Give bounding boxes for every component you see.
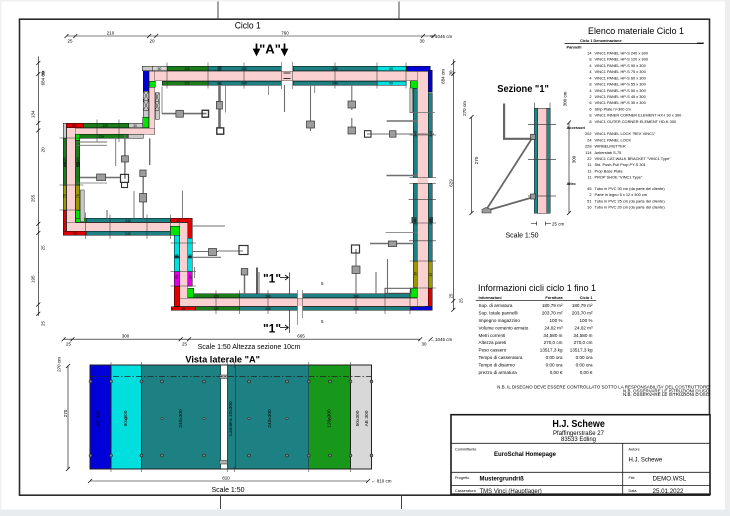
svg-text:Metri correnti: Metri correnti <box>479 333 506 338</box>
svg-text:24,02 m³: 24,02 m³ <box>544 325 563 330</box>
svg-text:30: 30 <box>421 342 427 347</box>
svg-text:270: 270 <box>63 409 68 417</box>
svg-text:8: 8 <box>589 113 591 118</box>
svg-text:File: File <box>629 476 635 480</box>
svg-text:120: 120 <box>76 157 80 163</box>
svg-text:Tempo di disarmo: Tempo di disarmo <box>479 362 516 367</box>
svg-text:VINC1 PANEL HP-S 90 x 300: VINC1 PANEL HP-S 90 x 300 <box>595 63 647 68</box>
svg-text:0:00 ora: 0:00 ora <box>576 362 593 367</box>
svg-text:0:00 ora: 0:00 ora <box>546 362 563 367</box>
svg-text:120: 120 <box>213 295 219 299</box>
svg-text:25: 25 <box>41 321 46 327</box>
svg-text:Tubo in PVC 20 cm (da parte de: Tubo in PVC 20 cm (da parte del cliente) <box>595 205 666 210</box>
svg-text:Prop Base Plate: Prop Base Plate <box>595 168 623 173</box>
svg-text:Sup. di armatura: Sup. di armatura <box>479 303 513 308</box>
svg-text:←1045 cm: ←1045 cm <box>431 337 453 342</box>
svg-text:55: 55 <box>177 219 181 223</box>
svg-text:"A": "A" <box>259 42 281 57</box>
svg-text:N.B. OSSERVARE LE ISTRUZIONI D: N.B. OSSERVARE LE ISTRUZIONI D'USO! <box>623 392 710 397</box>
svg-text:203,70 m²: 203,70 m² <box>542 311 563 316</box>
svg-text:Fornitura: Fornitura <box>545 295 563 300</box>
svg-text:Peso cassero: Peso cassero <box>479 348 507 353</box>
svg-text:Ciclo 1 Denominazione: Ciclo 1 Denominazione <box>580 39 622 43</box>
svg-text:0,00 €: 0,00 € <box>550 370 563 375</box>
svg-text:228: 228 <box>585 144 592 149</box>
svg-text:20: 20 <box>41 147 46 153</box>
svg-text:684 cm: 684 cm <box>441 69 446 84</box>
svg-text:300 cm: 300 cm <box>563 91 568 106</box>
svg-text:Sezione "1": Sezione "1" <box>497 84 549 95</box>
svg-text:120: 120 <box>184 82 190 86</box>
svg-text:H.J. Schewe: H.J. Schewe <box>552 419 605 430</box>
svg-text:90: 90 <box>175 254 179 258</box>
svg-text:VINC1 PANEL HP-S 240 x 300: VINC1 PANEL HP-S 240 x 300 <box>595 51 649 56</box>
svg-text:Vista laterale "A": Vista laterale "A" <box>185 355 260 366</box>
svg-text:24,02 m³: 24,02 m³ <box>574 325 593 330</box>
svg-text:VINC1 INNER CORNER ELEMENT HX-: VINC1 INNER CORNER ELEMENT HX-I 30 x 300 <box>595 113 683 118</box>
svg-text:Impegno magazzino: Impegno magazzino <box>479 318 521 323</box>
svg-text:240: 240 <box>125 232 131 236</box>
svg-text:45: 45 <box>587 186 591 191</box>
svg-text:210: 210 <box>107 31 115 36</box>
svg-text:TMS Vinci (Hauptlager): TMS Vinci (Hauptlager) <box>480 489 542 495</box>
svg-text:"1": "1" <box>263 322 281 336</box>
svg-text:25: 25 <box>41 245 46 251</box>
svg-text:Scale 1:50: Scale 1:50 <box>211 487 244 494</box>
svg-text:34,580 m: 34,580 m <box>543 333 562 338</box>
svg-text:120: 120 <box>63 157 67 163</box>
svg-text:Casseratura: Casseratura <box>455 489 477 493</box>
svg-text:Mustergrundriß: Mustergrundriß <box>480 476 525 482</box>
svg-text:240: 240 <box>353 307 359 311</box>
svg-text:240: 240 <box>429 219 433 225</box>
svg-text:Data: Data <box>629 489 638 493</box>
svg-text:25: 25 <box>449 293 454 299</box>
svg-text:Tubo in PVC 25 cm (da parte de: Tubo in PVC 25 cm (da parte del cliente) <box>595 198 666 203</box>
svg-text:2: 2 <box>589 94 591 99</box>
svg-text:810: 810 <box>222 476 230 481</box>
svg-text:Std. Push-Pull Prop PY-S 301: Std. Push-Pull Prop PY-S 301 <box>595 162 646 167</box>
svg-text:240: 240 <box>332 82 338 86</box>
svg-text:240: 240 <box>429 131 433 137</box>
svg-text:202: 202 <box>585 131 592 136</box>
svg-text:8: 8 <box>589 82 591 87</box>
svg-text:Ankerstab S-75: Ankerstab S-75 <box>595 150 622 155</box>
svg-text:Pannelli: Pannelli <box>567 45 582 50</box>
svg-text:195: 195 <box>31 275 36 283</box>
svg-text:VINC1 PANEL LOCK: VINC1 PANEL LOCK <box>595 137 632 142</box>
svg-text:22: 22 <box>587 156 591 161</box>
svg-text:50x300: 50x300 <box>355 410 361 426</box>
svg-text:Informazioni: Informazioni <box>479 295 502 300</box>
svg-text:WIRBELMUTTER: WIRBELMUTTER <box>595 144 626 149</box>
svg-text:Progetto: Progetto <box>455 476 469 480</box>
svg-text:Accessori: Accessori <box>567 125 586 130</box>
svg-text:240: 240 <box>265 295 271 299</box>
svg-text:Ciclo 1: Ciclo 1 <box>235 21 261 32</box>
svg-text:114: 114 <box>585 150 592 155</box>
svg-text:VINC1 PANEL HP-S 50 x 300: VINC1 PANEL HP-S 50 x 300 <box>595 88 647 93</box>
svg-text:30: 30 <box>175 275 179 279</box>
svg-text:34,580 m: 34,580 m <box>573 333 592 338</box>
svg-text:240: 240 <box>332 67 338 71</box>
svg-text:6: 6 <box>589 106 591 111</box>
svg-text:VINC1 CAT-WALK BRACKET "VINC1: VINC1 CAT-WALK BRACKET "VINC1 Type" <box>595 156 672 161</box>
svg-text:90: 90 <box>389 82 393 86</box>
svg-text:100 %: 100 % <box>549 318 562 323</box>
svg-text:Altezza pareti: Altezza pareti <box>479 340 507 345</box>
svg-text:prezzo di armatura: prezzo di armatura <box>479 370 518 375</box>
svg-text:100 %: 100 % <box>579 318 592 323</box>
svg-text:11: 11 <box>587 168 591 173</box>
svg-text:Scale 1:50 Altezza sezione 1: Scale 1:50 Altezza sezione 10cm <box>198 344 301 351</box>
svg-text:30: 30 <box>133 124 137 128</box>
svg-text:30: 30 <box>414 272 418 276</box>
svg-text:50: 50 <box>158 67 162 71</box>
svg-text:270,0 cm: 270,0 cm <box>544 340 563 345</box>
svg-text:120: 120 <box>213 307 219 311</box>
svg-text:Committente: Committente <box>455 448 477 452</box>
svg-text:30: 30 <box>419 39 425 44</box>
svg-text:90: 90 <box>389 67 393 71</box>
svg-text:0,00 €: 0,00 € <box>580 370 593 375</box>
svg-text:30: 30 <box>449 70 454 76</box>
svg-text:120: 120 <box>102 124 108 128</box>
svg-text:25.01.2022: 25.01.2022 <box>653 488 685 495</box>
svg-text:240: 240 <box>241 67 247 71</box>
svg-text:13517,3 kg: 13517,3 kg <box>540 348 563 353</box>
svg-text:VINC1 PANEL HP-S 45 x 300: VINC1 PANEL HP-S 45 x 300 <box>595 94 647 99</box>
svg-text:240: 240 <box>125 219 131 223</box>
svg-text:25: 25 <box>66 342 72 347</box>
svg-text:180,79 m²: 180,79 m² <box>572 303 593 308</box>
svg-text:AE 300: AE 300 <box>364 410 370 426</box>
svg-text:Strip Plate h=300 cm: Strip Plate h=300 cm <box>595 106 631 111</box>
svg-text:Tubo in PVC 30 cm (da parte de: Tubo in PVC 30 cm (da parte del cliente) <box>595 186 666 191</box>
svg-text:"1": "1" <box>263 272 281 286</box>
svg-text:760: 760 <box>281 31 289 36</box>
svg-text:120x300: 120x300 <box>327 409 333 428</box>
svg-text:25: 25 <box>182 342 188 347</box>
svg-text:134: 134 <box>31 110 36 118</box>
svg-text:VINC1 PANEL HP-S 120 x 300: VINC1 PANEL HP-S 120 x 300 <box>595 57 649 62</box>
svg-text:120: 120 <box>184 67 190 71</box>
svg-text:30: 30 <box>188 275 192 279</box>
svg-text:EuroSchal Homepage: EuroSchal Homepage <box>494 452 557 458</box>
svg-text:300: 300 <box>122 334 130 339</box>
svg-text:8: 8 <box>589 57 591 62</box>
svg-text:6: 6 <box>589 100 591 105</box>
svg-text:90x300: 90x300 <box>123 410 129 426</box>
svg-text:2: 2 <box>589 192 591 197</box>
svg-text:VINC1 PANEL HP-S 30 x 300: VINC1 PANEL HP-S 30 x 300 <box>595 100 647 105</box>
svg-text:75: 75 <box>63 194 67 198</box>
svg-text:H.J. Schewe: H.J. Schewe <box>629 458 663 464</box>
svg-text:VINC1 PANEL LOCK "REX VINC1": VINC1 PANEL LOCK "REX VINC1" <box>595 131 657 136</box>
svg-text:270: 270 <box>474 156 479 164</box>
svg-text:240: 240 <box>414 131 418 137</box>
svg-text:240x300: 240x300 <box>267 409 273 428</box>
svg-text:240: 240 <box>241 82 247 86</box>
svg-text:75: 75 <box>76 194 80 198</box>
svg-text:55: 55 <box>73 232 77 236</box>
svg-text:VINC1 OUTER CORNER ELEMENT HD-: VINC1 OUTER CORNER ELEMENT HD-K 300 <box>595 119 677 124</box>
svg-text:665: 665 <box>297 334 305 339</box>
svg-text:55: 55 <box>72 124 76 128</box>
svg-text:240: 240 <box>414 219 418 225</box>
svg-text:11: 11 <box>587 175 591 180</box>
svg-text:PROP SHOE "VINC1 Type": PROP SHOE "VINC1 Type" <box>595 175 643 180</box>
svg-text:Scale 1:50: Scale 1:50 <box>505 233 538 240</box>
svg-text:Parte in legno 5 x 12 x 300 cm: Parte in legno 5 x 12 x 300 cm <box>595 192 648 197</box>
svg-text:25: 25 <box>459 298 464 303</box>
svg-text:0:00 ora: 0:00 ora <box>546 355 563 360</box>
svg-text:255: 255 <box>31 194 36 202</box>
svg-text:Tempo di casseratura: Tempo di casseratura <box>479 355 523 360</box>
svg-text:DEMO.WSL: DEMO.WSL <box>653 475 687 482</box>
svg-text:←1045 cm: ←1045 cm <box>431 34 453 39</box>
svg-text:11: 11 <box>587 162 591 167</box>
svg-text:55: 55 <box>181 307 185 311</box>
svg-text:VINC1 PANEL HP-S 75 x 300: VINC1 PANEL HP-S 75 x 300 <box>595 69 647 74</box>
svg-text:25 cm: 25 cm <box>552 222 565 227</box>
svg-text:8: 8 <box>589 119 591 124</box>
svg-text:Lamiera 10x300: Lamiera 10x300 <box>228 401 234 436</box>
svg-text:270 cm: 270 cm <box>462 101 467 116</box>
svg-text:30: 30 <box>429 273 433 277</box>
svg-text:180,79 m²: 180,79 m² <box>542 303 563 308</box>
svg-text:0:00 ora: 0:00 ora <box>576 355 593 360</box>
svg-text:20: 20 <box>149 39 155 44</box>
svg-text:VINC1 PANEL HP-S 55 x 300: VINC1 PANEL HP-S 55 x 300 <box>595 82 647 87</box>
svg-text:240: 240 <box>353 295 359 299</box>
svg-text:VINC1 PANEL HP-S 60 x 300: VINC1 PANEL HP-S 60 x 300 <box>595 75 647 80</box>
svg-text:Volume cemento armato: Volume cemento armato <box>479 325 529 330</box>
svg-text:← 810 cm: ← 810 cm <box>371 479 392 484</box>
svg-text:629: 629 <box>449 179 454 187</box>
svg-text:270,0 cm: 270,0 cm <box>574 340 593 345</box>
svg-text:Sup. totale pannelli: Sup. totale pannelli <box>479 311 518 316</box>
svg-text:13517,3 kg: 13517,3 kg <box>570 348 593 353</box>
svg-text:AE 300: AE 300 <box>96 410 102 426</box>
svg-text:30: 30 <box>41 71 46 77</box>
svg-text:Informazioni cicli ciclo 1 fi: Informazioni cicli ciclo 1 fino 1 <box>478 283 596 293</box>
svg-text:90: 90 <box>188 254 192 258</box>
svg-text:240: 240 <box>265 307 271 311</box>
svg-text:203,70 m²: 203,70 m² <box>572 311 593 316</box>
svg-text:120: 120 <box>98 135 104 139</box>
svg-text:Ciclo 1: Ciclo 1 <box>580 295 594 300</box>
svg-text:300: 300 <box>572 155 577 163</box>
svg-text:Elenco materiale Ciclo 1: Elenco materiale Ciclo 1 <box>588 26 684 36</box>
svg-text:51: 51 <box>587 198 591 203</box>
svg-text:Altro: Altro <box>567 181 577 186</box>
svg-text:270 cm: 270 cm <box>57 357 62 372</box>
svg-text:25: 25 <box>67 39 73 44</box>
svg-text:83533 Edling: 83533 Edling <box>561 437 596 443</box>
svg-text:240x300: 240x300 <box>178 409 184 428</box>
svg-text:Autore: Autore <box>629 448 640 452</box>
